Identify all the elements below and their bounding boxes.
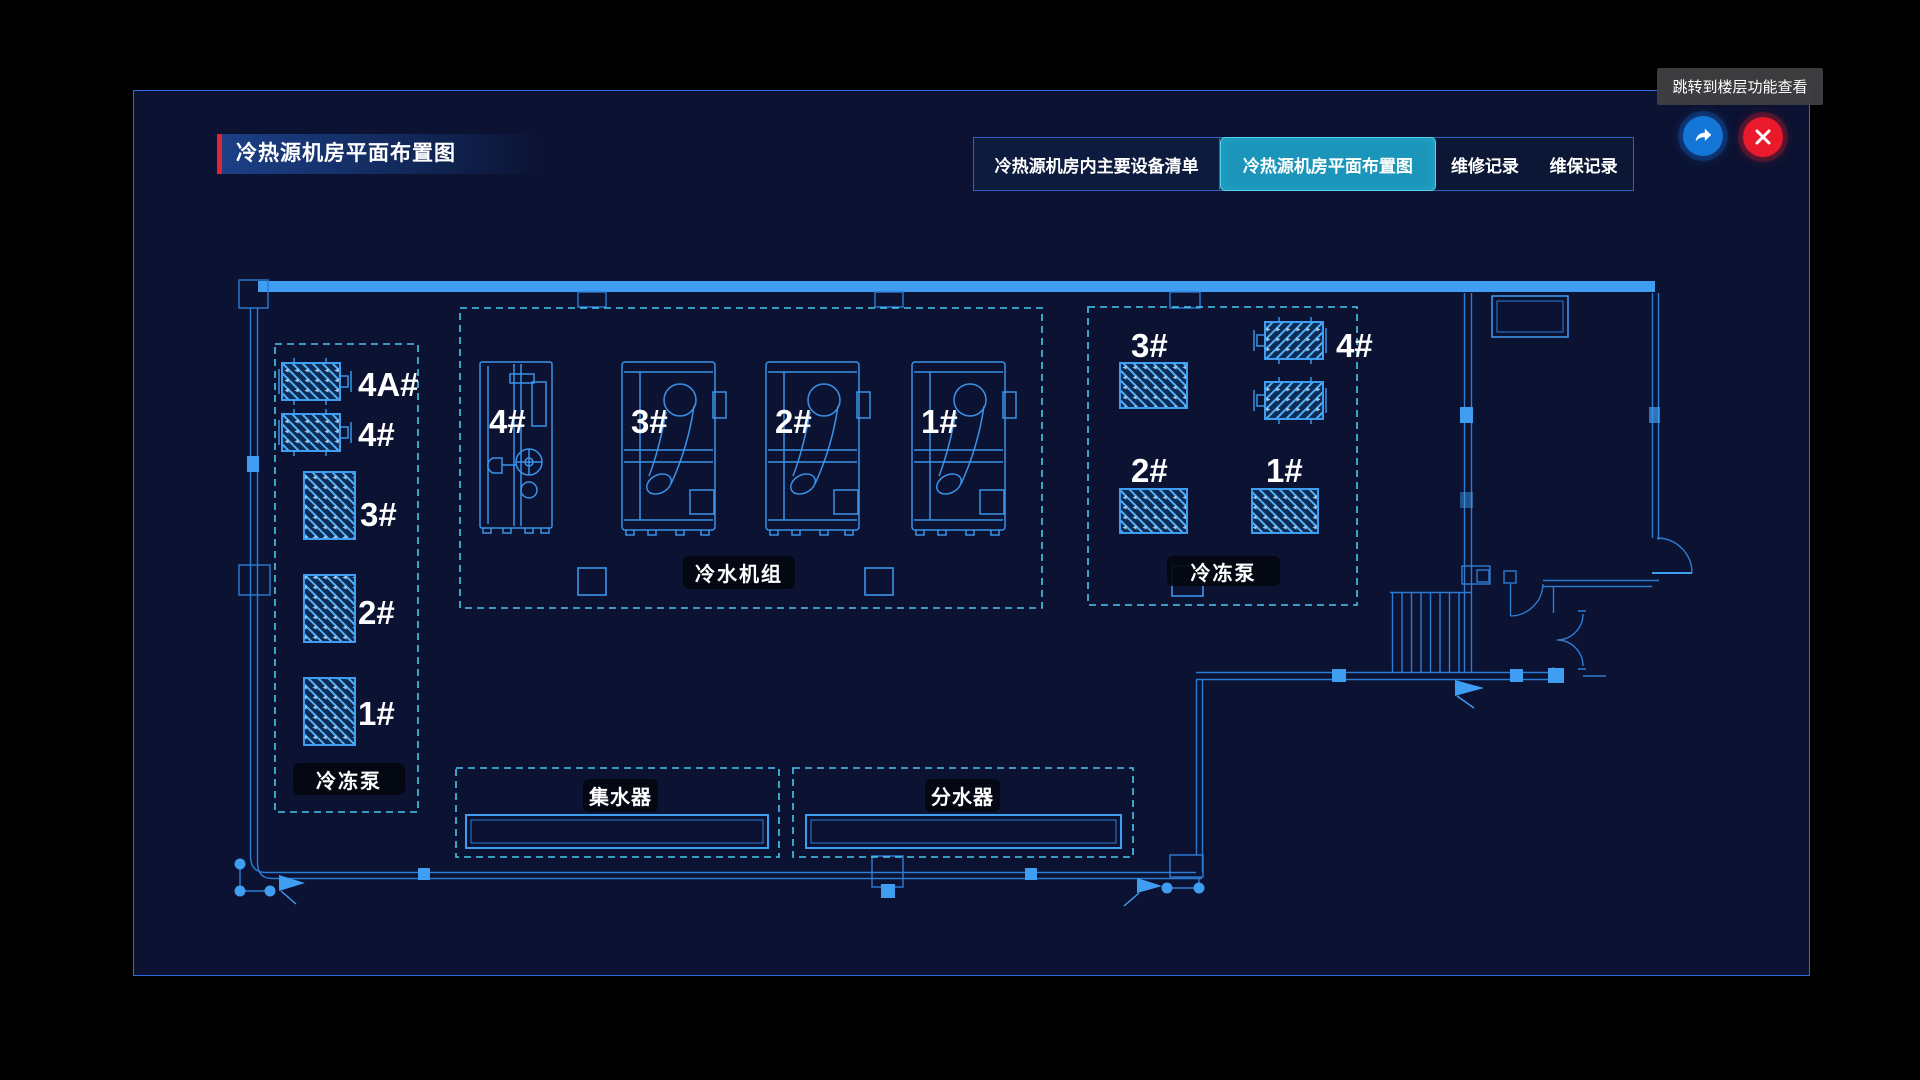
share-arrow-icon (1692, 125, 1714, 147)
tab-bar: 冷热源机房内主要设备清单 冷热源机房平面布置图 维修记录 维保记录 (973, 137, 1634, 191)
tab-floor-plan[interactable]: 冷热源机房平面布置图 (1220, 137, 1435, 191)
close-icon (1754, 128, 1772, 146)
jump-to-floor-button[interactable] (1683, 116, 1723, 156)
page-title: 冷热源机房平面布置图 (217, 134, 546, 174)
left-pumps-group-label: 冷冻泵 (293, 763, 405, 795)
main-panel (133, 90, 1810, 976)
chillers-group-label: 冷水机组 (683, 556, 795, 589)
tab-maintenance-records[interactable]: 维保记录 (1534, 138, 1633, 190)
tab-repair-records[interactable]: 维修记录 (1436, 138, 1535, 190)
right-pumps-group-label: 冷冻泵 (1167, 556, 1280, 586)
distributor-label: 分水器 (925, 779, 1000, 812)
jump-tooltip: 跳转到楼层功能查看 (1657, 68, 1823, 105)
tab-equipment-list[interactable]: 冷热源机房内主要设备清单 (974, 138, 1220, 190)
page-title-text: 冷热源机房平面布置图 (222, 134, 546, 174)
close-button[interactable] (1743, 117, 1783, 157)
collector-label: 集水器 (583, 779, 658, 812)
